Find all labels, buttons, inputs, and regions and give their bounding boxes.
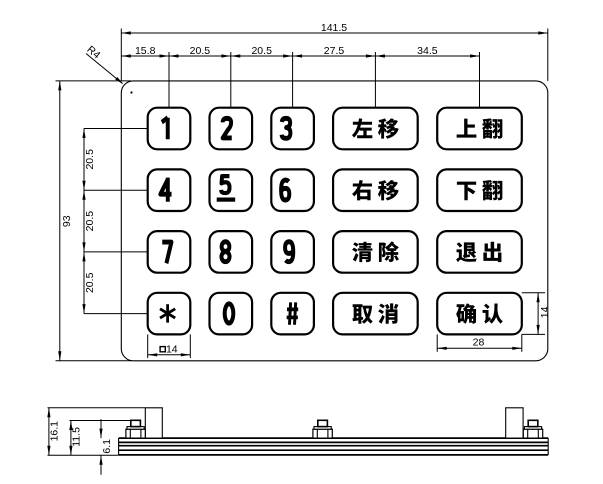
svg-text:14: 14 — [166, 344, 178, 356]
svg-text:20.5: 20.5 — [251, 45, 272, 57]
svg-text:28: 28 — [473, 337, 485, 349]
svg-text:20.5: 20.5 — [84, 149, 96, 170]
svg-text:141.5: 141.5 — [321, 22, 347, 34]
svg-text:34.5: 34.5 — [417, 45, 438, 57]
svg-text:20.5: 20.5 — [84, 272, 96, 293]
svg-text:14: 14 — [539, 306, 551, 318]
svg-text:R4: R4 — [84, 44, 102, 62]
svg-text:20.5: 20.5 — [190, 45, 211, 57]
svg-text:20.5: 20.5 — [84, 211, 96, 232]
svg-text:27.5: 27.5 — [324, 45, 345, 57]
svg-text:93: 93 — [61, 215, 73, 227]
svg-text:16.1: 16.1 — [49, 421, 61, 442]
svg-text:6.1: 6.1 — [101, 439, 113, 454]
svg-text:11.5: 11.5 — [71, 427, 83, 447]
svg-text:15.8: 15.8 — [135, 45, 156, 57]
